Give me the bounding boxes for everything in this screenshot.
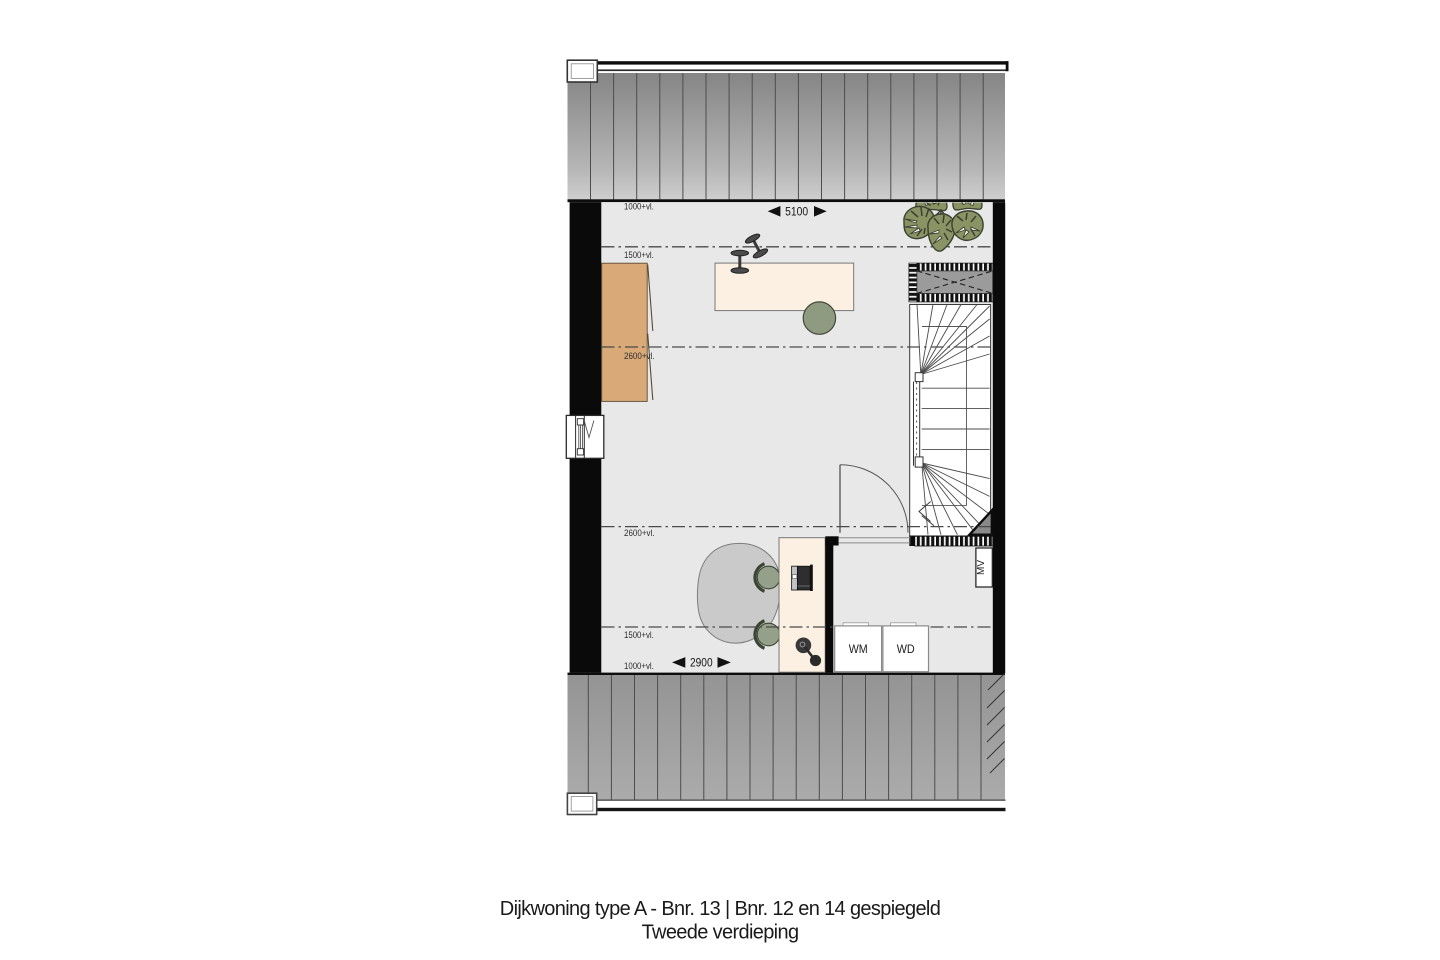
svg-text:1000+vl.: 1000+vl. xyxy=(624,201,654,211)
svg-text:1500+vl.: 1500+vl. xyxy=(624,250,654,260)
svg-text:Tweede verdieping: Tweede verdieping xyxy=(642,922,799,944)
svg-text:WM: WM xyxy=(849,642,868,656)
svg-text:1500+vl.: 1500+vl. xyxy=(624,630,654,640)
svg-text:MV: MV xyxy=(976,560,987,575)
svg-text:2900: 2900 xyxy=(690,658,713,670)
svg-text:5100: 5100 xyxy=(785,206,808,218)
svg-text:1000+vl.: 1000+vl. xyxy=(624,661,654,671)
svg-text:2600+vl.: 2600+vl. xyxy=(624,528,655,538)
svg-text:2600+vl.: 2600+vl. xyxy=(624,351,655,361)
svg-text:Dijkwoning type A - Bnr. 13 |: Dijkwoning type A - Bnr. 13 | Bnr. 12 en… xyxy=(500,898,940,920)
svg-text:WD: WD xyxy=(897,642,915,656)
